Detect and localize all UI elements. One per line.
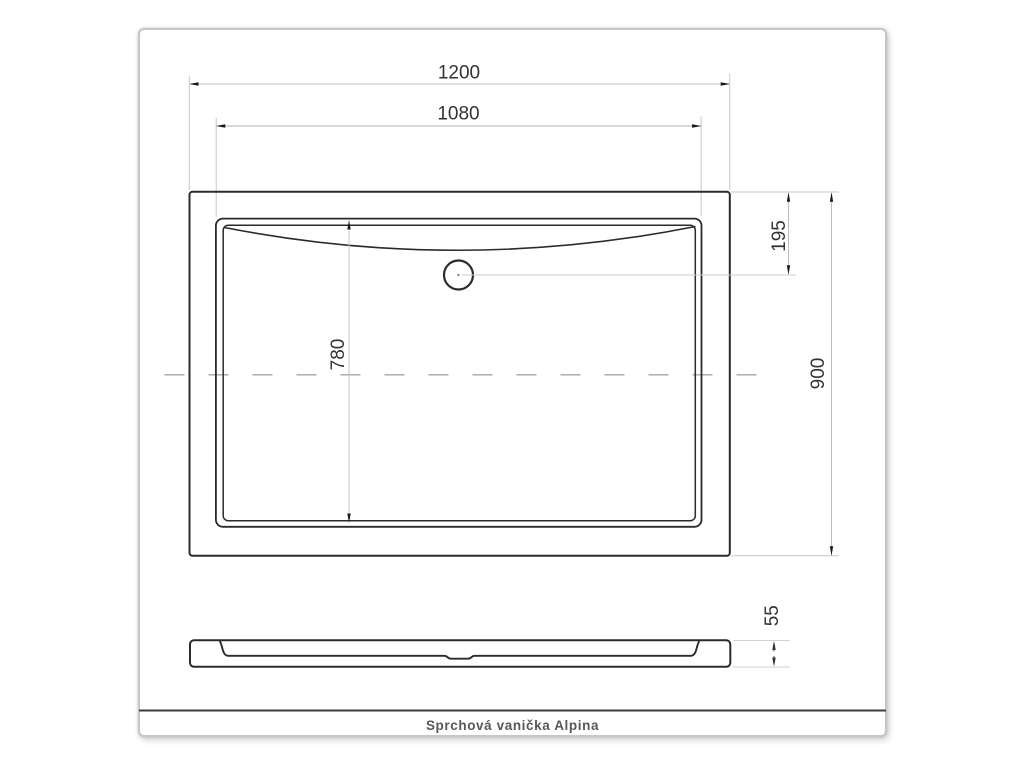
svg-text:900: 900: [808, 358, 829, 390]
svg-text:195: 195: [769, 220, 790, 252]
svg-text:55: 55: [762, 605, 783, 626]
svg-text:780: 780: [328, 339, 349, 371]
svg-text:1200: 1200: [438, 63, 480, 84]
svg-text:1080: 1080: [437, 104, 479, 125]
